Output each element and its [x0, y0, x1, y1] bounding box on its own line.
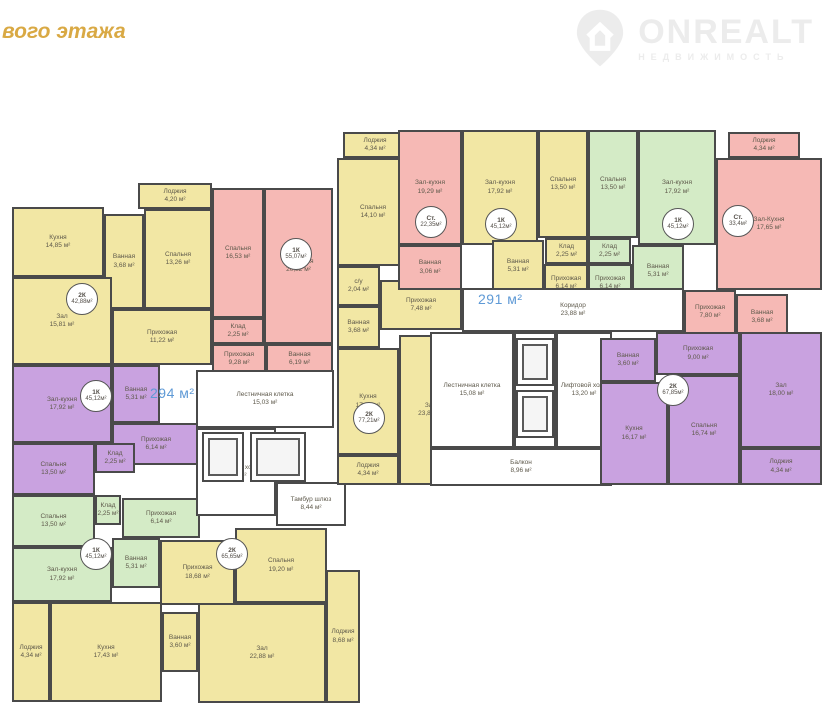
- room: Прихожая6,14 м²: [122, 498, 200, 538]
- room-label: Ванная5,31 м²: [506, 257, 530, 276]
- room-label: Ванная6,19 м²: [287, 350, 311, 369]
- room: Лоджия4,20 м²: [138, 183, 212, 209]
- room-label: Ванная3,60 м²: [616, 351, 640, 370]
- room-label: Прихожая18,68 м²: [181, 563, 213, 582]
- room-label: Клад2,25 м²: [598, 242, 621, 261]
- room: Спальня13,50 м²: [12, 495, 95, 547]
- room: Зал15,81 м²: [12, 277, 112, 365]
- room: Зал18,00 м²: [740, 332, 822, 448]
- room: Клад2,25 м²: [588, 238, 631, 264]
- room-label: Зал-кухня17,92 м²: [661, 178, 693, 197]
- room-label: Спальня13,50 м²: [549, 175, 577, 194]
- room-label: Прихожая6,14 м²: [145, 509, 177, 528]
- room-label: Спальня19,20 м²: [267, 556, 295, 575]
- room-label: Ванная3,68 м²: [750, 308, 774, 327]
- room-label: Клад2,25 м²: [103, 449, 126, 468]
- room-label: Зал-кухня19,29 м²: [414, 178, 446, 197]
- stairwell: Лестничная клетка15,08 м²: [430, 332, 514, 448]
- stairwell: Лестничная клетка15,03 м²: [196, 370, 334, 428]
- room: Прихожая7,80 м²: [684, 290, 736, 334]
- room-label: Ванная3,60 м²: [168, 633, 192, 652]
- room-label: Зал-Кухня17,65 м²: [753, 215, 786, 234]
- elevator-shaft: [516, 390, 554, 438]
- room: Лоджия4,34 м²: [728, 132, 800, 158]
- room: Клад2,25 м²: [545, 238, 588, 264]
- room-label: Зал22,88 м²: [249, 644, 276, 663]
- room-label: Кухня16,17 м²: [621, 424, 648, 443]
- room: Зал22,88 м²: [198, 603, 326, 703]
- elevator-cabin: [522, 396, 548, 432]
- room: Клад2,25 м²: [95, 443, 135, 473]
- room-label: Спальня13,26 м²: [164, 250, 192, 269]
- room-label: Лоджия8,68 м²: [330, 627, 355, 646]
- room: Клад2,25 м²: [212, 318, 264, 344]
- room-label: Балкон8,96 м²: [509, 458, 533, 477]
- room: Спальня16,53 м²: [212, 188, 264, 318]
- room: Лоджия4,34 м²: [12, 602, 50, 702]
- room: Балкон8,96 м²: [430, 448, 612, 486]
- elevator-cabin: [522, 344, 548, 380]
- elevator-cabin: [256, 438, 300, 476]
- room: Клад2,25 м²: [95, 495, 121, 525]
- apartment-area-badge: 1К45,12м²: [80, 380, 112, 412]
- apartment-area-badge: 1К45,12м²: [662, 208, 694, 240]
- room-label: Зал-кухня17,92 м²: [46, 395, 78, 414]
- apartment-area-badge: 1К45,12м²: [80, 538, 112, 570]
- section-area-label: 291 м²: [478, 291, 523, 307]
- room-label: Прихожая9,00 м²: [682, 344, 714, 363]
- room: Ванная3,06 м²: [398, 245, 462, 290]
- room-label: Спальня13,50 м²: [39, 460, 67, 479]
- room-label: Ванная3,68 м²: [112, 252, 136, 271]
- room-label: с/у2,04 м²: [347, 277, 370, 296]
- room-label: Лоджия4,34 м²: [18, 643, 43, 662]
- room: Спальня13,50 м²: [538, 130, 588, 238]
- room-label: Ванная5,31 м²: [124, 385, 148, 404]
- room-label: Коридор23,88 м²: [559, 301, 587, 320]
- room: Тамбур шлюз8,44 м²: [276, 482, 346, 526]
- apartment-area-badge: 2К42,88м²: [66, 283, 98, 315]
- room: с/у2,04 м²: [337, 266, 380, 306]
- room: Лоджия8,68 м²: [326, 570, 360, 703]
- room-label: Лоджия4,34 м²: [768, 457, 793, 476]
- elevator-shaft: [516, 338, 554, 386]
- room-label: Кухня14,85 м²: [45, 233, 72, 252]
- room-label: Зал-кухня17,92 м²: [484, 178, 516, 197]
- room-label: Лоджия4,34 м²: [355, 461, 380, 480]
- room-label: Клад2,25 м²: [226, 322, 249, 341]
- apartment-area-badge: 2К65,65м²: [216, 538, 248, 570]
- apartment-area-badge: 1К45,12м²: [485, 208, 517, 240]
- room-label: Тамбур шлюз8,44 м²: [290, 495, 333, 514]
- room: Ванная5,31 м²: [492, 240, 544, 292]
- room-label: Прихожая7,48 м²: [405, 296, 437, 315]
- room-label: Спальня13,50 м²: [39, 512, 67, 531]
- room-label: Лоджия4,34 м²: [751, 136, 776, 155]
- room-label: Прихожая9,28 м²: [223, 350, 255, 369]
- room: Ванная5,31 м²: [112, 538, 160, 588]
- floorplan-canvas: Лоджия4,20 м²Кухня14,85 м²Ванная3,68 м²С…: [0, 0, 828, 721]
- room-label: Лоджия4,34 м²: [362, 136, 387, 155]
- apartment-area-badge: 2К67,85м²: [657, 374, 689, 406]
- room: Кухня14,85 м²: [12, 207, 104, 277]
- room-label: Спальня13,50 м²: [599, 175, 627, 194]
- room: Ванная3,60 м²: [162, 612, 198, 672]
- section-area-label: 294 м²: [150, 385, 195, 401]
- room-label: Лестничная клетка15,08 м²: [443, 381, 502, 400]
- room: Кухня17,43 м²: [50, 602, 162, 702]
- room-label: Зал-кухня17,92 м²: [46, 565, 78, 584]
- room: Лоджия4,34 м²: [337, 455, 399, 485]
- elevator-shaft: [250, 432, 306, 482]
- apartment-area-badge: 2К77,21м²: [353, 402, 385, 434]
- room: Прихожая11,22 м²: [112, 309, 212, 365]
- room-label: Спальня16,53 м²: [224, 244, 252, 263]
- room: Кухня16,17 м²: [600, 382, 668, 485]
- room: Ванная3,60 м²: [600, 338, 656, 382]
- apartment-area-badge: Ст.33,4м²: [722, 205, 754, 237]
- room-label: Зал18,00 м²: [768, 381, 795, 400]
- room-label: Зал15,81 м²: [49, 312, 76, 331]
- room: Спальня13,50 м²: [588, 130, 638, 238]
- room: Прихожая9,00 м²: [656, 332, 740, 375]
- elevator-shaft: [202, 432, 244, 482]
- elevator-cabin: [208, 438, 238, 476]
- apartment-area-badge: 1К55,07м²: [280, 238, 312, 270]
- room-label: Ванная5,31 м²: [646, 262, 670, 281]
- room-label: Ванная5,31 м²: [124, 554, 148, 573]
- room-label: Клад2,25 м²: [96, 501, 119, 520]
- room-label: Спальня16,74 м²: [690, 421, 718, 440]
- room: Спальня13,26 м²: [144, 209, 212, 309]
- room-label: Лестничная клетка15,03 м²: [236, 390, 295, 409]
- room-label: Ванная3,06 м²: [418, 258, 442, 277]
- room: Лоджия4,34 м²: [740, 448, 822, 485]
- room: Спальня13,50 м²: [12, 443, 95, 495]
- room-label: Прихожая11,22 м²: [146, 328, 178, 347]
- room-label: Спальня14,10 м²: [359, 203, 387, 222]
- room-label: Лоджия4,20 м²: [162, 187, 187, 206]
- room-label: Кухня17,43 м²: [93, 643, 120, 662]
- room: Ванная3,68 м²: [337, 306, 380, 348]
- room-label: Прихожая6,14 м²: [140, 435, 172, 454]
- room: Спальня19,20 м²: [235, 528, 327, 603]
- room-label: Ванная3,68 м²: [346, 318, 370, 337]
- room-label: Клад2,25 м²: [555, 242, 578, 261]
- room-label: Прихожая7,80 м²: [694, 303, 726, 322]
- apartment-area-badge: Ст.22,35м²: [415, 206, 447, 238]
